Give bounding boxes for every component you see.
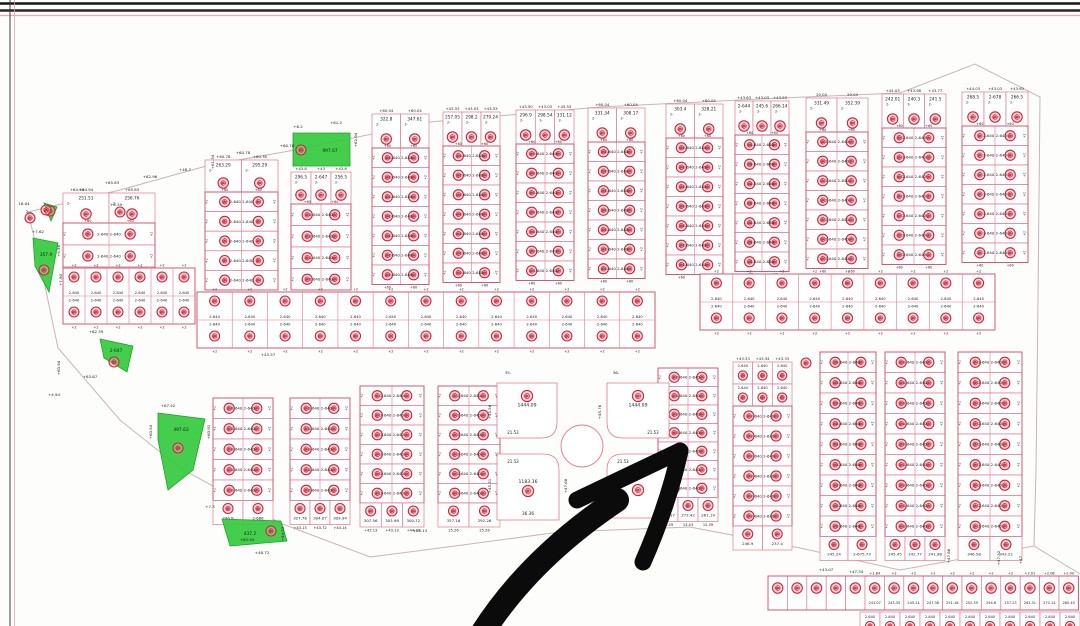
- seal-stamp: [387, 506, 397, 516]
- elevation-label: +44.03: [966, 86, 981, 91]
- seal-stamp: [1012, 112, 1022, 122]
- plot-pair-label: 2-640: [135, 299, 146, 303]
- elevation-label: +7.62: [32, 229, 44, 234]
- plot-block-top: +60.78+60.78263.292-295.292-+60+602-640 …: [205, 154, 278, 295]
- map-label: +2: [116, 326, 121, 330]
- seal-stamp: [135, 272, 145, 282]
- plot-pair-label: 2-640 2-640: [380, 393, 404, 398]
- dimension-label: 21.53: [647, 430, 659, 435]
- elevation-label: +45.56: [487, 404, 492, 419]
- elevation-label: 25.26: [448, 529, 459, 533]
- map-label: +60: [896, 266, 903, 270]
- map-label: +2: [600, 288, 605, 292]
- plot-pair-label: 2-640 2-640: [836, 380, 860, 385]
- seal-stamp: [974, 278, 984, 288]
- plot-area-number: 303.4: [674, 107, 687, 113]
- plot-area-number: 246.9: [742, 541, 754, 546]
- plot-pair-label: 2-640 2-640: [903, 421, 927, 426]
- plot-area-number: 241.98: [928, 552, 942, 557]
- map-label: +2: [94, 264, 99, 268]
- seal-stamp: [969, 540, 979, 550]
- map-label: +2: [786, 474, 790, 479]
- map-label: +2: [747, 270, 752, 274]
- map-label: +2: [940, 194, 944, 199]
- map-label: +2: [783, 220, 787, 225]
- elevation-label: +43.8: [335, 166, 347, 171]
- plot-pair-label: 2-640: [744, 297, 755, 301]
- map-label: 2-640: [757, 386, 768, 390]
- seal-stamp: [947, 583, 957, 593]
- seal-stamp: [909, 114, 919, 124]
- plot-pair-label: 2-640 2-640: [825, 198, 849, 203]
- seal-stamp: [91, 307, 101, 317]
- plot-area-number: 257.23: [1004, 601, 1016, 605]
- seal-stamp: [559, 130, 569, 140]
- map-label: +2: [344, 467, 348, 472]
- plot-block-top: 20.0420.04331.492-352.392-+60+602-640 2-…: [806, 92, 868, 274]
- map-label: +2: [712, 449, 716, 454]
- map-label: +60: [528, 282, 535, 286]
- plot-pair-label: 2-640 2-640: [457, 491, 481, 496]
- seal-stamp: [675, 124, 685, 134]
- seal-stamp: [847, 118, 857, 128]
- elevation-label: +48.72: [255, 550, 270, 555]
- seal-stamp: [527, 331, 537, 341]
- elevation-label: +2.08: [1044, 572, 1055, 576]
- plot-pair-label: 2-640 2-640: [836, 360, 860, 365]
- plot-pair-label: 2-640 2-640: [308, 406, 332, 411]
- map-label: +2: [149, 232, 153, 237]
- seal-stamp: [125, 251, 135, 261]
- seal-stamp: [491, 296, 501, 306]
- elevation-label: +43.57: [261, 352, 276, 357]
- plot-pair-label: 2-640: [113, 291, 124, 295]
- map-label: +60: [678, 276, 685, 280]
- elevation-label: +60.78: [216, 154, 231, 159]
- map-label: +2: [212, 288, 217, 292]
- map-label: +2: [1022, 192, 1026, 197]
- plot-block-lower: +43.33+43.34+43.332-6402-6402-6402-6402-…: [733, 356, 792, 550]
- map-label: +2: [1016, 483, 1020, 488]
- seal-stamp: [485, 132, 495, 142]
- elevation-label: 35-: [505, 370, 512, 375]
- seal-stamp: [743, 529, 753, 539]
- elevation-label: +43.98: [907, 88, 922, 93]
- plot-pair-label: 2-640: [91, 291, 102, 295]
- seal-stamp: [908, 278, 918, 288]
- plot-pair-label: 2-640 2-640: [902, 233, 926, 238]
- elevation-label: +43.07: [819, 567, 834, 572]
- plot-pair-label: 2-640 2-640: [750, 220, 774, 225]
- seal-stamp: [777, 278, 787, 288]
- map-label: +2: [423, 155, 427, 160]
- elevation-label: +60.04: [595, 102, 610, 107]
- seal-stamp: [109, 357, 119, 367]
- elevation-label: +43.77: [928, 88, 943, 93]
- plot-pair-label: 2-640: [865, 615, 875, 619]
- plot-pair-label: 2-640: [842, 297, 853, 301]
- plot-pair-label: 2-640 2-640: [903, 483, 927, 488]
- elevation-label: +6.39: [110, 202, 122, 207]
- elevation-label: +2.00: [1063, 572, 1074, 576]
- plot-pair-label: 2-640 2-640: [683, 165, 707, 170]
- map-label: +60: [746, 131, 753, 135]
- seal-stamp: [843, 278, 853, 288]
- seal-stamp: [540, 130, 550, 140]
- plot-pair-label: 2-640 2-640: [676, 375, 700, 380]
- plot-pair-label: 2-640: [157, 299, 168, 303]
- plot-area-number: 261.31: [1024, 601, 1036, 605]
- roundabout-circle: [561, 425, 603, 467]
- elevation-label: +43.33: [775, 356, 790, 361]
- seal-stamp: [801, 358, 811, 368]
- elevation-label: +43.63: [737, 95, 752, 100]
- map-label: +2: [600, 350, 605, 354]
- plot-pair-label: 2-640 2-640: [978, 483, 1002, 488]
- map-label: +2: [786, 454, 790, 459]
- seal-stamp: [778, 393, 787, 402]
- plot-pair-label: 2-640: [491, 315, 502, 319]
- seal-stamp: [521, 390, 532, 401]
- plot-pair-label: 2-640: [1065, 615, 1075, 619]
- map-label: +2: [878, 332, 883, 336]
- plot-block-lower: 2-640 2-640+2+22-640 2-640+2+22-640 2-64…: [820, 352, 876, 561]
- elevation-label: +43.13: [385, 529, 398, 533]
- plot-pair-label: 2-640 2-640: [751, 473, 775, 478]
- elevation-label: +43.03: [538, 104, 553, 109]
- plot-pair-label: 2-640 2-640: [230, 199, 254, 204]
- map-label: +2: [717, 165, 721, 170]
- seal-stamp: [135, 307, 145, 317]
- seal-stamp: [456, 331, 466, 341]
- seal-stamp: [296, 145, 306, 155]
- plot-pair-label: 2-640: [925, 615, 935, 619]
- map-label: +2: [423, 233, 427, 238]
- plot-pair-label: 2-640 2-640: [389, 194, 413, 199]
- map-label: +2: [212, 350, 217, 354]
- seal-stamp: [1001, 540, 1011, 550]
- plot-pair-label: 2-640 2-640: [750, 162, 774, 167]
- elevation-label: +60.91: [206, 424, 211, 439]
- dimension-label: 21.53: [617, 459, 629, 464]
- plot-area-number: 347.61: [407, 117, 422, 123]
- plot-pair-label: 2-640 2-640: [460, 251, 484, 256]
- plot-pair-label: 2-640 2-640: [308, 467, 332, 472]
- elevation-label: 20.04: [847, 92, 858, 97]
- map-label: +2: [939, 401, 943, 406]
- map-label: +60: [925, 124, 932, 128]
- plot-block-lower: 2-640 2-640+2+22-640 2-640+2+22-640 2-64…: [958, 352, 1022, 561]
- seal-stamp: [831, 583, 841, 593]
- map-label: +2: [267, 488, 271, 493]
- plot-area-number: 346.58: [967, 552, 981, 557]
- plot-pair-label: 2-640 2-640: [231, 488, 255, 493]
- plot-pair-label: 2-640 2-640: [751, 453, 775, 458]
- map-label: +60: [481, 284, 488, 288]
- seal-stamp: [83, 229, 93, 239]
- plot-area-number: 260.40: [1063, 601, 1075, 605]
- plot-pair-label: 2-640 2-640: [903, 360, 927, 365]
- plot-pair-label: 2-640: [456, 323, 467, 327]
- seal-stamp: [857, 540, 867, 550]
- plot-pair-label: 2-640: [905, 615, 915, 619]
- seal-stamp: [829, 540, 839, 550]
- plot-pair-label: 2-640 2-640: [309, 277, 333, 282]
- plot-pair-label: 2-640: [597, 315, 608, 319]
- elevation-label: +2: [950, 572, 955, 576]
- seal-stamp: [703, 501, 713, 511]
- map-label: +2: [283, 350, 288, 354]
- map-label: +2: [568, 210, 572, 215]
- seal-stamp: [775, 121, 785, 131]
- plot-pair-label: 2-640 2-640: [457, 393, 481, 398]
- map-label: +2: [939, 380, 943, 385]
- plot-pair-label: 2-640 2-640: [750, 142, 774, 147]
- seal-stamp: [758, 371, 767, 380]
- map-label: 2-640: [777, 364, 788, 368]
- map-label: +2: [717, 262, 721, 267]
- plot-pair-label: 2-640 2-640: [231, 406, 255, 411]
- seal-stamp: [632, 331, 642, 341]
- seal-stamp: [220, 236, 230, 246]
- map-label: +2: [845, 332, 850, 336]
- plot-pair-label: 2-640 2-640: [533, 249, 557, 254]
- map-label: +2: [160, 264, 165, 268]
- map-label: +60: [528, 140, 535, 144]
- map-label: 2-640: [738, 386, 749, 390]
- plot-area-number: 251.51: [78, 196, 93, 202]
- plot-pair-label: 2-640 2-640: [683, 223, 707, 228]
- plot-pair-label: 2-640 2-640: [309, 234, 333, 239]
- map-label: +60: [771, 131, 778, 135]
- plot-area-number: 303.98: [385, 518, 399, 523]
- plot-pair-label: 2-640 2-640: [231, 467, 255, 472]
- plot-pair-label: 2-640 2-640: [902, 155, 926, 160]
- seal-stamp: [738, 371, 747, 380]
- plot-pair-label: 2-640: [209, 315, 220, 319]
- seal-stamp: [223, 504, 233, 514]
- elevation-label: +43.53: [483, 106, 498, 111]
- seal-stamp: [744, 313, 754, 323]
- seal-stamp: [810, 313, 820, 323]
- seal-stamp: [1045, 621, 1054, 626]
- plot-pair-label: 2-640 2-640: [983, 231, 1007, 236]
- map-label: +2: [870, 380, 874, 385]
- seal-stamp: [351, 296, 361, 306]
- plot-pair-label: 2-640: [908, 305, 919, 309]
- elevation-label: +47.68: [563, 478, 568, 493]
- elevation-label: +7.3: [205, 504, 215, 509]
- plot-pair-label: 2-640 2-640: [460, 192, 484, 197]
- map-label: +2: [568, 171, 572, 176]
- plot-pair-label: 2-640 2-640: [978, 462, 1002, 467]
- seal-stamp: [466, 132, 476, 142]
- map-label: +2: [862, 198, 866, 203]
- plot-pair-label: 2-640 2-640: [605, 247, 629, 252]
- map-label: +2: [870, 360, 874, 365]
- seal-stamp: [245, 296, 255, 306]
- plot-pair-label: 2-640 2-640: [825, 178, 849, 183]
- seal-stamp: [597, 296, 607, 306]
- plot-block-top: +43.8+43+43.8296.52-2-6472-256.52-+60+60…: [291, 166, 351, 295]
- seal-stamp: [945, 621, 954, 626]
- seal-stamp: [253, 256, 263, 266]
- plot-pair-label: 2-640 2-640: [605, 188, 629, 193]
- map-label: +2: [940, 233, 944, 238]
- plot-area-number: 256.76: [124, 196, 139, 202]
- map-label: +60: [304, 200, 311, 204]
- plot-pair-label: 2-640: [350, 315, 361, 319]
- map-label: +2: [564, 350, 569, 354]
- map-label: +2: [1016, 380, 1020, 385]
- map-label: +2: [267, 467, 271, 472]
- plot-area-number: 1183.36: [519, 479, 538, 485]
- map-label: +2: [939, 360, 943, 365]
- seal-stamp: [125, 229, 135, 239]
- map-label: +60: [410, 286, 417, 290]
- plot-pair-label: 2-640 2-640: [389, 214, 413, 219]
- map-label: +2: [862, 178, 866, 183]
- plot-pair-label: 2-640 2-640: [902, 252, 926, 257]
- map-label: +60: [384, 144, 391, 148]
- map-label: +2: [272, 239, 276, 244]
- map-label: +2: [940, 213, 944, 218]
- seal-stamp: [885, 621, 894, 626]
- plot-pair-label: 2-640 2-640: [380, 413, 404, 418]
- map-label: +2: [862, 256, 866, 261]
- seal-stamp: [865, 621, 874, 626]
- map-label: +60: [481, 142, 488, 146]
- plot-block-lower: 2-640 2-640+2+22-640 2-640+2+22-640 2-64…: [290, 398, 350, 530]
- green-area: 357.9: [33, 238, 58, 292]
- elevation-label: +43.03: [988, 86, 1003, 91]
- plot-pair-label: 2-640 2-640: [983, 250, 1007, 255]
- seal-stamp: [562, 296, 572, 306]
- map-label: +60: [704, 134, 711, 138]
- seal-stamp: [220, 197, 230, 207]
- map-label: +2: [160, 326, 165, 330]
- map-label: +2: [568, 190, 572, 195]
- elevation-label: +43.53: [557, 104, 572, 109]
- map-label: +60: [455, 142, 462, 146]
- map-label: +2: [423, 272, 427, 277]
- plot-block-lower: 2-640 2-640+2+22-640 2-640+2+22-640 2-64…: [213, 398, 273, 525]
- map-label: +60: [84, 219, 91, 223]
- plot-block-top: +60.04+60.04322.82-347.612-+60+602-640 2…: [372, 108, 429, 290]
- map-label: +2: [870, 421, 874, 426]
- seal-stamp: [930, 540, 940, 550]
- seal-stamp: [253, 197, 263, 207]
- plot-pair-label: 2-640 2-640: [836, 401, 860, 406]
- map-label: +2: [783, 181, 787, 186]
- cadastral-map-svg: +64.94+65.83251.512-256.762-+60+602-640 …: [0, 0, 1080, 626]
- map-label: +2: [353, 350, 358, 354]
- plot-pair-label: 2-640 2-640: [683, 184, 707, 189]
- map-label: +2: [870, 401, 874, 406]
- map-label: +2: [779, 332, 784, 336]
- plot-pair-label: 2-640 2-640: [983, 133, 1007, 138]
- plot-pair-label: 2-640 2-640: [683, 145, 707, 150]
- seal-stamp: [210, 331, 220, 341]
- plot-pair-label: 2-640 2-640: [457, 432, 481, 437]
- plot-pair-label: 2-640: [526, 315, 537, 319]
- map-label: +2: [267, 426, 271, 431]
- map-label: +2: [639, 169, 643, 174]
- plot-pair-label: 2-640 2-640: [380, 432, 404, 437]
- elevation-label: +47: [1018, 555, 1023, 564]
- seal-stamp: [928, 583, 938, 593]
- seal-stamp: [941, 278, 951, 288]
- map-label: +2: [712, 486, 716, 491]
- seal-stamp: [220, 275, 230, 285]
- plot-pair-label: 2-640 2-640: [309, 212, 333, 217]
- plot-area-number: 245.24: [827, 552, 841, 557]
- map-label: +2: [267, 406, 271, 411]
- map-label: +60: [600, 280, 607, 284]
- seal-stamp: [711, 313, 721, 323]
- plot-block-top: +43.50+43.03+43.53296.92-298.542-331.122…: [516, 104, 574, 286]
- map-label: +2: [783, 259, 787, 264]
- plot-pair-label: 2-640 2-640: [533, 268, 557, 273]
- plot-pair-label: 2-640 2-640: [460, 270, 484, 275]
- plot-area-number: 1444.09: [629, 403, 648, 409]
- map-label: +2: [635, 288, 640, 292]
- plot-pair-label: 2-640: [875, 297, 886, 301]
- seal-stamp: [336, 190, 346, 200]
- seal-stamp: [704, 124, 714, 134]
- plot-pair-label: 2-640: [244, 323, 255, 327]
- map-label: +2: [318, 288, 323, 292]
- plot-pair-label: 2-640: [209, 323, 220, 327]
- plot-area-number: 327.76: [293, 516, 307, 521]
- plot-pair-label: 2-640 2-640: [97, 231, 121, 236]
- map-label: +2: [717, 243, 721, 248]
- plot-pair-label: 2-640 2-640: [903, 380, 927, 385]
- map-label: +2: [1016, 421, 1020, 426]
- plot-pair-label: 2-640: [875, 305, 886, 309]
- seal-stamp: [887, 114, 897, 124]
- green-area-number: 2-647: [110, 348, 123, 354]
- elevation-label: +62.94: [353, 132, 358, 147]
- seal-stamp: [850, 583, 860, 593]
- plot-pair-label: 2-640 2-640: [750, 201, 774, 206]
- map-label: +2: [423, 175, 427, 180]
- plot-pair-label: 2-640 2-640: [902, 213, 926, 218]
- plot-block-top: +60.04+60.04303.42-328.212-+60+602-640 2…: [666, 98, 723, 280]
- plot-pair-label: 2-640 2-640: [978, 380, 1002, 385]
- elevation-label: +60.78: [253, 154, 268, 159]
- map-label: +2: [418, 471, 422, 476]
- plot-pair-label: 2-640 2-640: [902, 135, 926, 140]
- seal-stamp: [366, 506, 376, 516]
- map-label: +2: [870, 462, 874, 467]
- map-label: +2: [1016, 442, 1020, 447]
- plot-pair-label: 2-640: [179, 299, 190, 303]
- elevation-label: +45.76: [597, 404, 602, 419]
- elevation-label: 13.43: [683, 523, 693, 527]
- plot-pair-label: 2-640 2-640: [309, 255, 333, 260]
- seal-stamp: [253, 504, 263, 514]
- elevation-label: +67.42: [161, 403, 176, 408]
- plot-pair-label: 2-640: [777, 305, 788, 309]
- seal-stamp: [908, 313, 918, 323]
- plot-pair-label: 2-640 2-640: [676, 430, 700, 435]
- map-label: +2: [779, 270, 784, 274]
- seal-stamp: [69, 272, 79, 282]
- elevation-label: +48.7: [179, 167, 191, 172]
- elevation-label: +43.13: [413, 528, 428, 533]
- seal-stamp: [421, 331, 431, 341]
